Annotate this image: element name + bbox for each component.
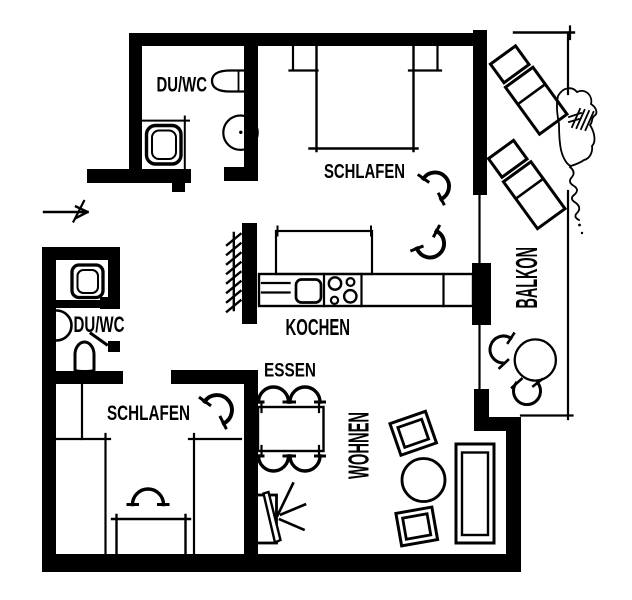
svg-text:DU/WC: DU/WC xyxy=(157,74,208,97)
svg-text:KOCHEN: KOCHEN xyxy=(286,314,351,340)
svg-text:WOHNEN: WOHNEN xyxy=(344,412,376,479)
svg-text:ESSEN: ESSEN xyxy=(264,360,316,382)
svg-text:SCHLAFEN: SCHLAFEN xyxy=(107,401,190,425)
svg-text:DU/WC: DU/WC xyxy=(74,312,125,337)
svg-text:BALKON: BALKON xyxy=(509,247,544,309)
svg-text:SCHLAFEN: SCHLAFEN xyxy=(324,160,405,183)
